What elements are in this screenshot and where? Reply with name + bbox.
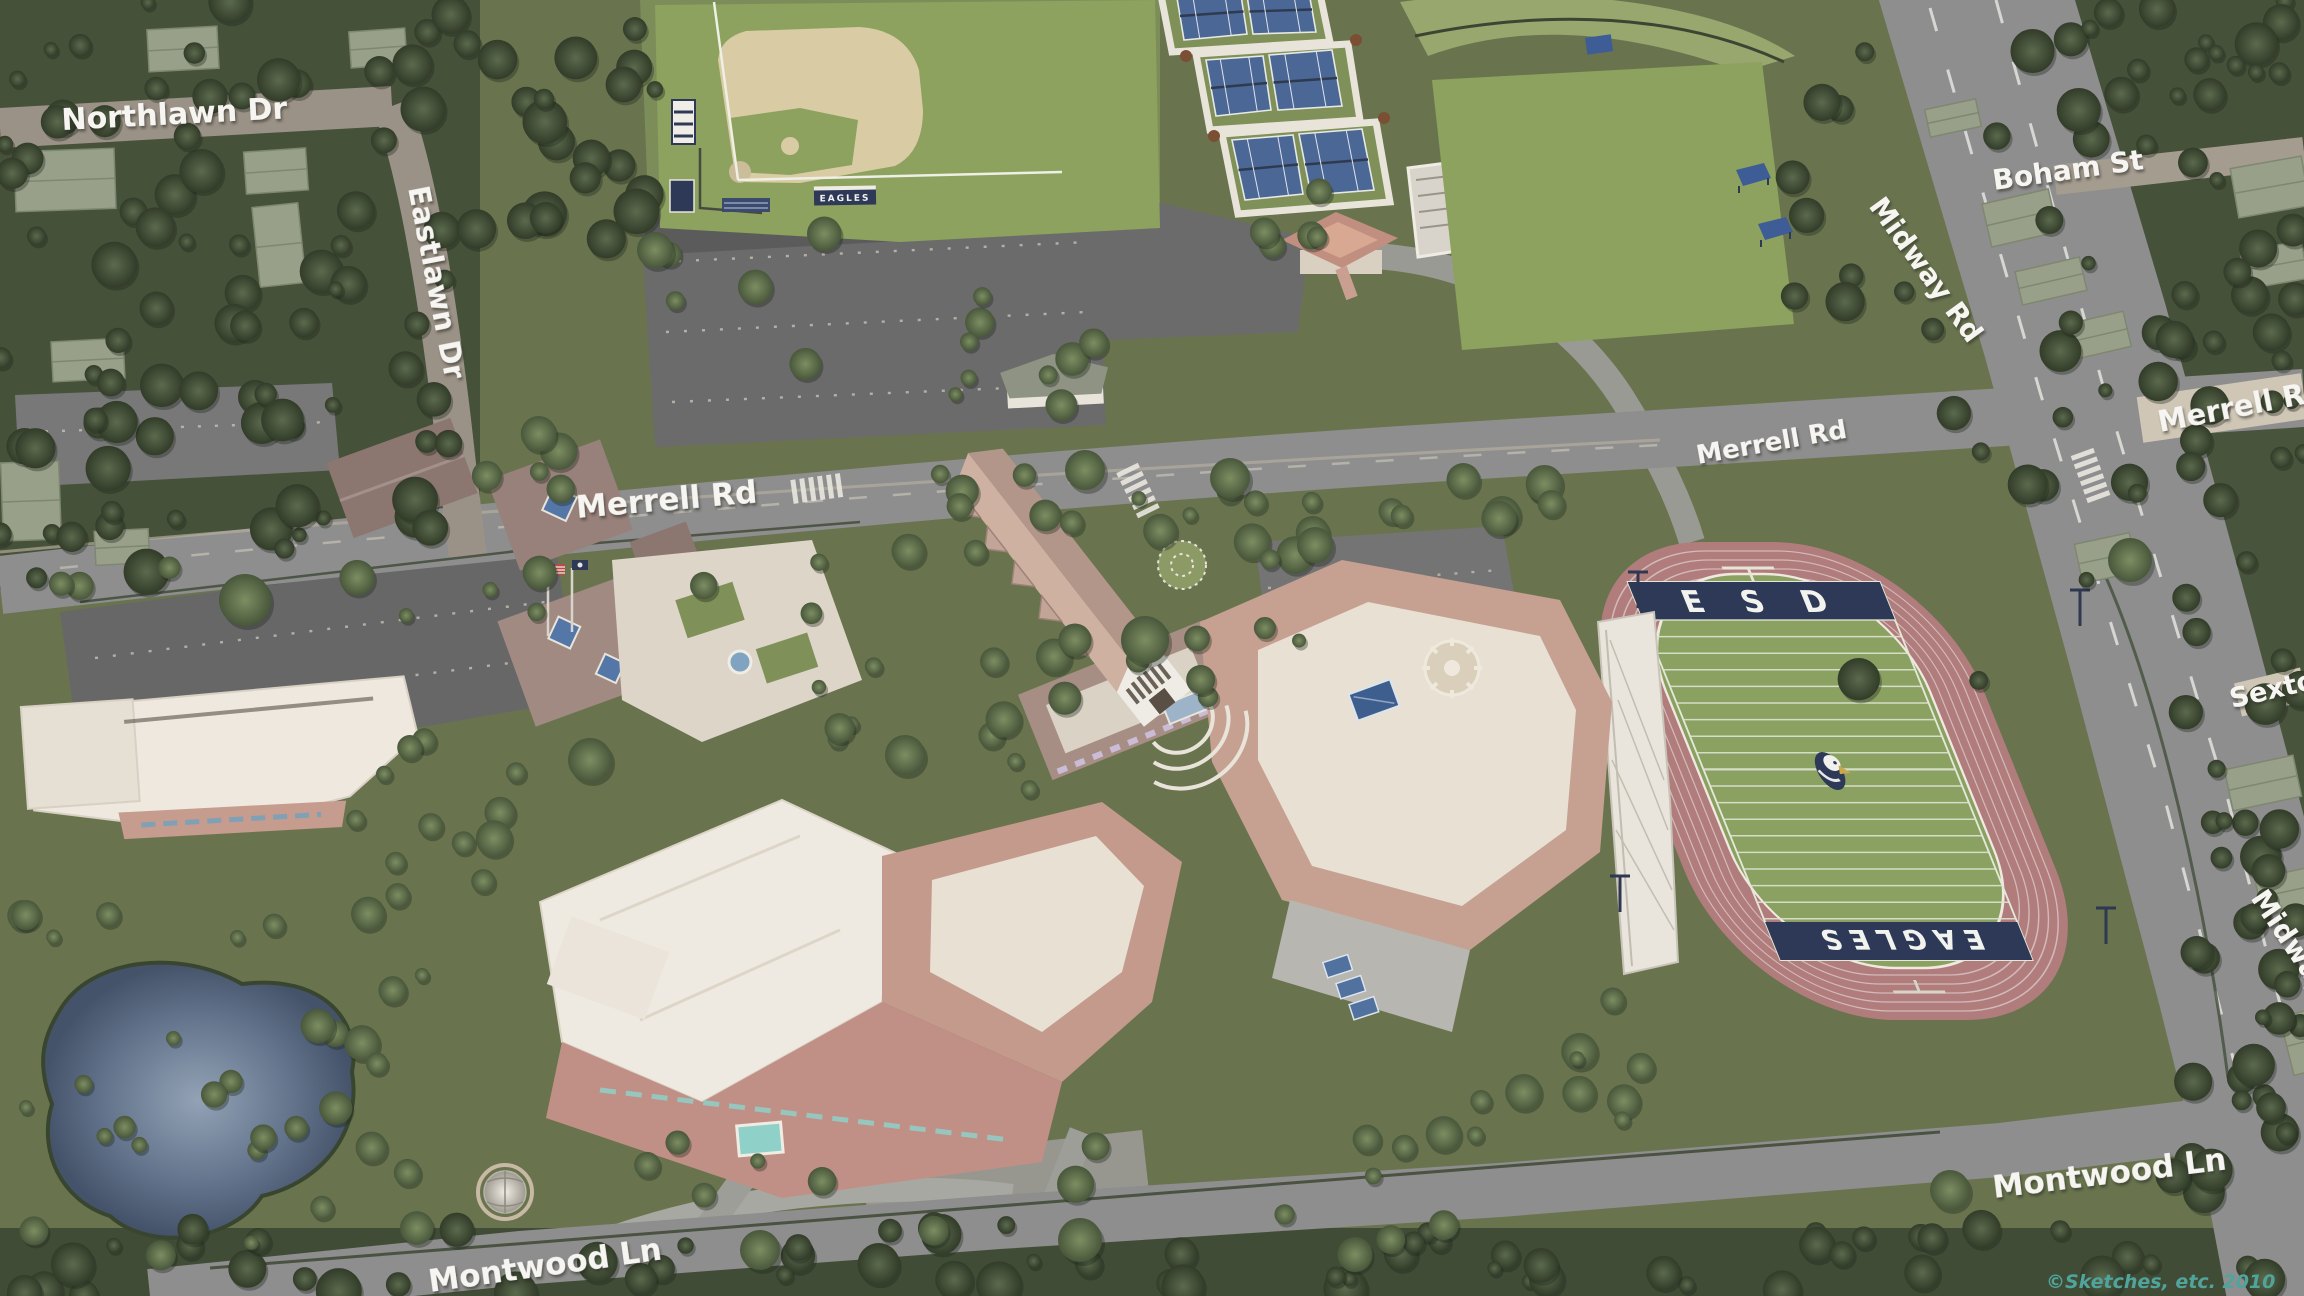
tree bbox=[385, 852, 406, 873]
tree bbox=[244, 1236, 258, 1250]
tree bbox=[948, 387, 962, 401]
tree bbox=[964, 540, 988, 564]
tree bbox=[96, 902, 121, 927]
tree bbox=[812, 680, 826, 694]
tree bbox=[530, 202, 562, 234]
tree bbox=[2171, 281, 2197, 307]
tree bbox=[1013, 463, 1036, 486]
tree bbox=[878, 1219, 902, 1243]
tree bbox=[2208, 45, 2224, 61]
tree bbox=[131, 1137, 147, 1153]
tree bbox=[293, 1267, 317, 1291]
tree bbox=[1467, 1126, 1484, 1143]
neighborhood-house bbox=[252, 203, 306, 287]
tree bbox=[1969, 671, 1988, 690]
tree bbox=[167, 510, 185, 528]
tree bbox=[1505, 1074, 1542, 1111]
tree bbox=[418, 813, 443, 838]
tree bbox=[2236, 551, 2257, 572]
practice-field-board bbox=[1585, 34, 1613, 54]
tree bbox=[2181, 936, 2213, 968]
tree bbox=[74, 1075, 92, 1093]
tree bbox=[44, 42, 58, 56]
baseball-field: EAGLES bbox=[655, 0, 1160, 242]
tree bbox=[1065, 450, 1105, 490]
tree bbox=[139, 292, 173, 326]
tree bbox=[1481, 501, 1516, 536]
tree bbox=[113, 1116, 135, 1138]
tree bbox=[2271, 648, 2295, 672]
tree bbox=[346, 810, 365, 829]
tennis-court bbox=[1246, 0, 1316, 34]
tree bbox=[483, 582, 498, 597]
tree bbox=[1962, 1210, 2000, 1248]
tree bbox=[1825, 282, 1864, 321]
tree bbox=[2156, 321, 2193, 358]
tree bbox=[96, 1128, 112, 1144]
tree bbox=[1446, 463, 1480, 497]
tree bbox=[2172, 584, 2200, 612]
tree bbox=[388, 351, 422, 385]
tree bbox=[960, 370, 976, 386]
end-zone-esd-text: E S D bbox=[1676, 585, 1848, 620]
tree bbox=[51, 1242, 95, 1286]
tree bbox=[457, 209, 497, 249]
tree bbox=[106, 1238, 121, 1253]
tree bbox=[319, 1091, 352, 1124]
tree bbox=[947, 493, 973, 519]
tree bbox=[1614, 1111, 1630, 1127]
tree bbox=[623, 17, 647, 41]
tree bbox=[440, 1213, 474, 1247]
tree bbox=[378, 976, 406, 1004]
tree bbox=[2174, 1063, 2212, 1101]
tree bbox=[2053, 407, 2074, 428]
tree bbox=[57, 522, 87, 552]
tree bbox=[478, 40, 518, 80]
tree bbox=[1297, 527, 1333, 563]
eagles-outfield-sign: EAGLES bbox=[814, 185, 876, 205]
tree bbox=[2252, 854, 2286, 888]
tree bbox=[1894, 281, 1914, 301]
tree bbox=[1307, 226, 1328, 247]
tree bbox=[2255, 1009, 2270, 1024]
tree bbox=[2035, 206, 2063, 234]
tree bbox=[453, 30, 480, 57]
tree bbox=[1210, 458, 1250, 498]
tree bbox=[1904, 1255, 1940, 1291]
tree bbox=[46, 930, 61, 945]
tree bbox=[136, 417, 174, 455]
tree bbox=[140, 364, 184, 408]
tree bbox=[1391, 505, 1413, 527]
tree bbox=[399, 608, 414, 623]
tree bbox=[2108, 538, 2152, 582]
tree bbox=[1029, 500, 1061, 532]
tree bbox=[997, 1216, 1015, 1234]
tree bbox=[534, 89, 554, 109]
tree bbox=[2248, 64, 2264, 80]
tree bbox=[412, 510, 448, 546]
tree bbox=[690, 572, 717, 599]
tree bbox=[506, 762, 526, 782]
tree bbox=[284, 1116, 308, 1140]
tree bbox=[2253, 313, 2290, 350]
tree bbox=[1131, 491, 1146, 506]
tree bbox=[401, 87, 446, 132]
tree bbox=[891, 534, 925, 568]
tree bbox=[587, 219, 626, 258]
tree bbox=[1799, 1227, 1835, 1263]
tree bbox=[1524, 1248, 1559, 1283]
tree bbox=[417, 382, 452, 417]
tree bbox=[392, 44, 432, 84]
tree bbox=[1184, 626, 1210, 652]
tree bbox=[158, 556, 180, 578]
tree bbox=[2227, 56, 2245, 74]
tree bbox=[865, 657, 883, 675]
sun-medallion bbox=[1422, 638, 1482, 698]
tree bbox=[2223, 258, 2251, 286]
tree bbox=[2203, 331, 2225, 353]
tree bbox=[385, 883, 409, 907]
tree bbox=[986, 701, 1022, 737]
tree bbox=[351, 897, 385, 931]
tree bbox=[807, 217, 841, 251]
tree bbox=[1058, 624, 1091, 657]
tree bbox=[2209, 172, 2224, 187]
tree bbox=[2079, 572, 2095, 588]
tree bbox=[337, 191, 375, 229]
baseball-dugout bbox=[670, 180, 694, 212]
tree bbox=[1082, 1132, 1110, 1160]
tree bbox=[1337, 1237, 1372, 1272]
tree bbox=[750, 1153, 765, 1168]
tree bbox=[219, 574, 271, 626]
tree bbox=[523, 556, 557, 590]
tree bbox=[2138, 362, 2177, 401]
tree bbox=[692, 1183, 717, 1208]
fountain bbox=[729, 651, 751, 673]
tree bbox=[1855, 42, 1874, 61]
tree bbox=[2059, 311, 2083, 335]
tree bbox=[1079, 328, 1108, 357]
eagles-sign-text: EAGLES bbox=[820, 194, 871, 205]
tree bbox=[471, 869, 495, 893]
tree bbox=[1048, 682, 1081, 715]
tree bbox=[1429, 1210, 1459, 1240]
tree bbox=[9, 71, 26, 88]
tree bbox=[2081, 20, 2098, 37]
tree bbox=[1060, 510, 1084, 534]
tree bbox=[328, 281, 343, 296]
tree bbox=[919, 1216, 949, 1246]
tree bbox=[2098, 383, 2112, 397]
end-zone-eagles-text: EAGLES bbox=[1806, 923, 1989, 955]
tree bbox=[276, 484, 319, 527]
tree bbox=[1274, 1204, 1294, 1224]
tree bbox=[2211, 847, 2233, 869]
tree bbox=[184, 42, 205, 63]
tree bbox=[554, 36, 597, 79]
tree bbox=[2142, 1254, 2160, 1272]
tree bbox=[1057, 1166, 1094, 1203]
tree bbox=[1121, 616, 1169, 664]
tree bbox=[1260, 549, 1280, 569]
tree bbox=[49, 572, 73, 596]
tree bbox=[2193, 78, 2226, 111]
tree bbox=[606, 67, 642, 103]
tree bbox=[331, 235, 351, 255]
tree bbox=[177, 1214, 208, 1245]
tree bbox=[1538, 490, 1565, 517]
tree bbox=[230, 930, 245, 945]
tree bbox=[97, 369, 125, 397]
tree bbox=[1045, 389, 1077, 421]
tree bbox=[105, 328, 130, 353]
tree bbox=[1007, 753, 1023, 769]
tree bbox=[263, 914, 286, 937]
tree bbox=[1789, 198, 1824, 233]
neighborhood-house bbox=[147, 26, 219, 72]
tree bbox=[261, 399, 304, 442]
tree bbox=[2270, 447, 2291, 468]
tree bbox=[2256, 1093, 2286, 1123]
tree bbox=[2232, 1044, 2275, 1087]
tree bbox=[1353, 1125, 1382, 1154]
tree bbox=[2208, 760, 2226, 778]
tree bbox=[1392, 1135, 1417, 1160]
tree bbox=[2176, 452, 2205, 481]
tennis-court bbox=[1269, 50, 1342, 110]
tree bbox=[2050, 1220, 2070, 1240]
tree bbox=[1254, 617, 1276, 639]
tree bbox=[371, 127, 397, 153]
tree bbox=[1627, 1053, 1655, 1081]
map-credit: ©Sketches, etc. 2010 bbox=[2046, 1271, 2275, 1293]
tree bbox=[738, 270, 773, 305]
tree bbox=[637, 232, 673, 268]
tree bbox=[1562, 1076, 1596, 1110]
tree bbox=[1776, 160, 1810, 194]
tree bbox=[136, 207, 175, 246]
tree bbox=[1302, 492, 1322, 512]
tree bbox=[647, 81, 664, 98]
tree bbox=[26, 567, 47, 588]
tree bbox=[397, 735, 422, 760]
neighborhood-house bbox=[244, 148, 309, 194]
tree bbox=[230, 311, 260, 341]
tree bbox=[2010, 29, 2054, 73]
tree bbox=[1292, 634, 1306, 648]
tree bbox=[1182, 507, 1197, 522]
tree bbox=[15, 428, 55, 468]
tennis-court bbox=[1176, 0, 1247, 40]
tree bbox=[666, 291, 685, 310]
tree bbox=[1803, 84, 1840, 121]
tree bbox=[2057, 88, 2101, 132]
tree bbox=[415, 968, 429, 982]
tree bbox=[472, 461, 502, 491]
tree bbox=[1143, 514, 1177, 548]
tennis-court bbox=[1232, 135, 1303, 200]
tree bbox=[301, 1009, 336, 1044]
tree bbox=[634, 1152, 660, 1178]
tree bbox=[1186, 665, 1215, 694]
tree bbox=[2260, 809, 2299, 848]
tree bbox=[1026, 1254, 1040, 1268]
tree bbox=[274, 538, 294, 558]
tree bbox=[2169, 695, 2203, 729]
tree bbox=[435, 430, 462, 457]
tree bbox=[885, 735, 925, 775]
tree bbox=[1829, 1241, 1854, 1266]
tree bbox=[980, 647, 1008, 675]
tennis-court bbox=[1206, 56, 1271, 116]
tree bbox=[86, 446, 131, 491]
tree bbox=[801, 602, 823, 624]
tree bbox=[2203, 483, 2237, 517]
tree bbox=[1039, 365, 1058, 384]
tree bbox=[1852, 1226, 1875, 1249]
tree bbox=[166, 1031, 181, 1046]
tree bbox=[1600, 988, 1625, 1013]
tree bbox=[2178, 148, 2208, 178]
tree bbox=[179, 234, 195, 250]
tree bbox=[1426, 1116, 1462, 1152]
tree bbox=[476, 820, 512, 856]
tree bbox=[339, 560, 375, 596]
tree bbox=[366, 1053, 388, 1075]
tree bbox=[11, 900, 41, 930]
tree bbox=[146, 1240, 176, 1270]
tree bbox=[289, 308, 318, 337]
tree bbox=[527, 603, 545, 621]
tree bbox=[1983, 122, 2010, 149]
tree bbox=[229, 234, 249, 254]
tree bbox=[394, 1159, 421, 1186]
tree bbox=[858, 1243, 900, 1285]
tree bbox=[973, 287, 991, 305]
tree bbox=[1570, 1051, 1585, 1066]
tree bbox=[1250, 217, 1279, 246]
tree bbox=[376, 766, 392, 782]
tree bbox=[1376, 1225, 1405, 1254]
tree bbox=[1021, 780, 1038, 797]
tree bbox=[960, 332, 978, 350]
tree bbox=[2081, 256, 2096, 271]
tree bbox=[250, 1124, 276, 1150]
tree bbox=[452, 831, 475, 854]
tree bbox=[2232, 1090, 2252, 1110]
observatory-dome bbox=[478, 1165, 532, 1219]
tree bbox=[2232, 810, 2258, 836]
tree bbox=[2271, 350, 2291, 370]
tree bbox=[2276, 1122, 2297, 1143]
tree bbox=[400, 1211, 434, 1245]
tree bbox=[2182, 618, 2210, 646]
campus-map: EAGLES bbox=[0, 0, 2304, 1296]
tree bbox=[776, 1266, 793, 1283]
baseball-scoreboard bbox=[672, 100, 695, 144]
tree bbox=[530, 462, 549, 481]
tree bbox=[386, 1272, 411, 1296]
tree bbox=[19, 1216, 48, 1245]
tree bbox=[2127, 59, 2149, 81]
tree bbox=[310, 1196, 334, 1220]
tree bbox=[810, 554, 827, 571]
tree bbox=[1838, 658, 1880, 700]
tree bbox=[1937, 396, 1971, 430]
baseball-bleachers bbox=[722, 198, 770, 212]
tree bbox=[2128, 484, 2147, 503]
tree bbox=[179, 149, 223, 193]
school-flag bbox=[572, 560, 588, 570]
tree bbox=[1326, 1267, 1345, 1286]
tree bbox=[201, 1081, 227, 1107]
tree bbox=[665, 1130, 689, 1154]
tree bbox=[2184, 47, 2208, 71]
tree bbox=[415, 430, 438, 453]
tree bbox=[931, 465, 949, 483]
tree bbox=[325, 397, 341, 413]
tree bbox=[1487, 1261, 1501, 1275]
tree bbox=[364, 56, 394, 86]
tree bbox=[1930, 1170, 1970, 1210]
tree bbox=[1306, 178, 1332, 204]
tree bbox=[2008, 464, 2048, 504]
tree bbox=[2169, 87, 2185, 103]
tree bbox=[1781, 282, 1808, 309]
tree bbox=[789, 348, 821, 380]
tree bbox=[808, 1167, 837, 1196]
tree bbox=[27, 226, 46, 245]
tree bbox=[2215, 812, 2232, 829]
tree bbox=[69, 34, 92, 57]
tree bbox=[1470, 1090, 1492, 1112]
tree bbox=[101, 501, 123, 523]
tree bbox=[740, 1230, 780, 1270]
tree bbox=[568, 738, 612, 782]
tree bbox=[2104, 77, 2138, 111]
tree bbox=[356, 1132, 388, 1164]
tree bbox=[1646, 1256, 1680, 1290]
tree bbox=[1921, 318, 1944, 341]
tree bbox=[785, 1234, 811, 1260]
tree bbox=[677, 1237, 693, 1253]
tree bbox=[825, 713, 855, 743]
tree bbox=[1365, 1168, 1382, 1185]
tree bbox=[19, 1100, 33, 1114]
tree bbox=[1058, 1218, 1102, 1262]
tree bbox=[179, 371, 218, 410]
tree bbox=[1917, 1223, 1946, 1252]
tree bbox=[84, 408, 107, 431]
tree bbox=[1972, 442, 1990, 460]
tree bbox=[547, 475, 576, 504]
tree bbox=[2269, 62, 2290, 83]
tree bbox=[570, 162, 601, 193]
tree bbox=[91, 242, 137, 288]
tree bbox=[521, 416, 557, 452]
